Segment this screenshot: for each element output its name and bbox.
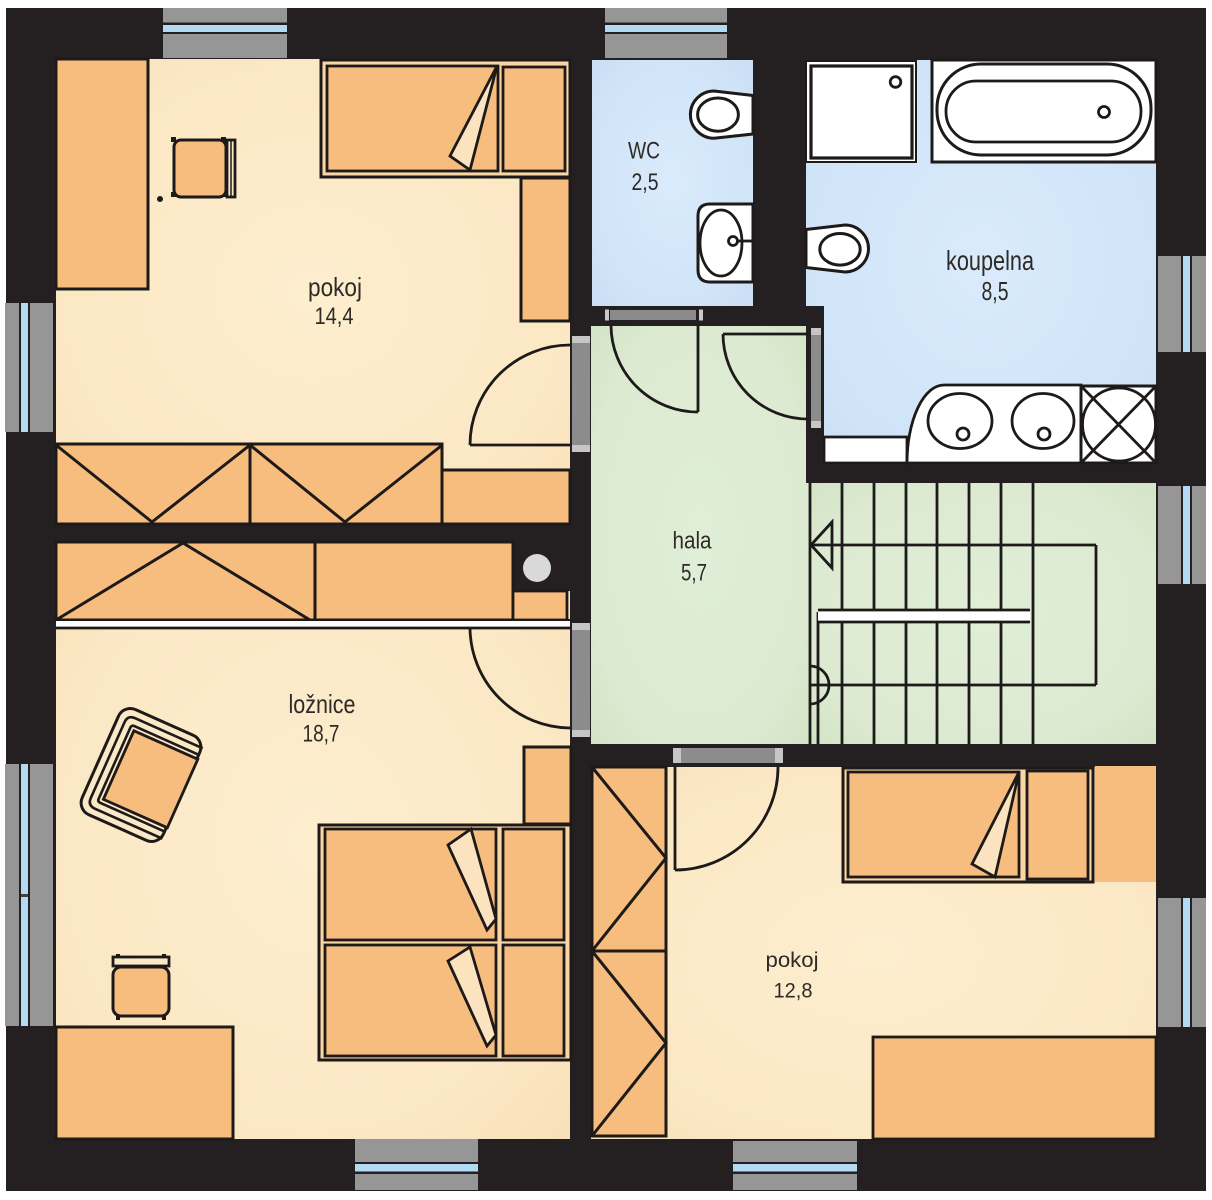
svg-text:18,7: 18,7: [303, 721, 340, 748]
svg-text:2,5: 2,5: [632, 169, 659, 196]
svg-text:14,4: 14,4: [315, 303, 354, 330]
svg-text:koupelna: koupelna: [946, 245, 1034, 276]
svg-text:8,5: 8,5: [982, 276, 1009, 306]
svg-text:12,8: 12,8: [774, 979, 813, 1003]
svg-text:ložnice: ložnice: [289, 689, 356, 719]
svg-text:pokoj: pokoj: [308, 272, 362, 302]
svg-text:hala: hala: [673, 528, 713, 555]
svg-text:5,7: 5,7: [681, 560, 707, 587]
svg-text:pokoj: pokoj: [766, 949, 819, 972]
svg-text:WC: WC: [628, 138, 660, 165]
